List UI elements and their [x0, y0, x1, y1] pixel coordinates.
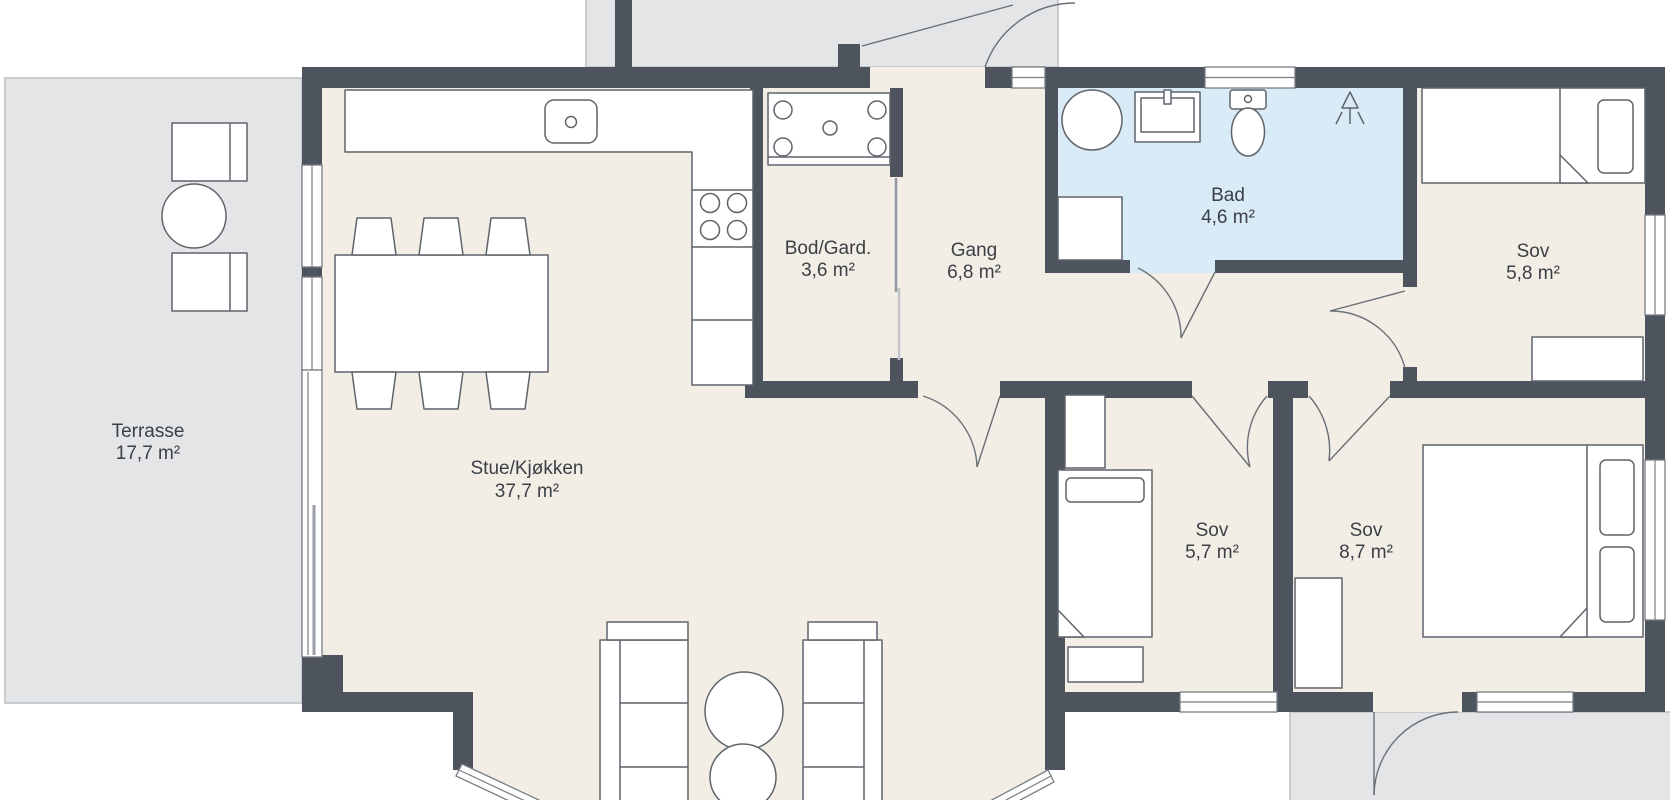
appliance-knob-icon [823, 121, 837, 135]
dining-chair [486, 372, 530, 409]
room-name-bod: Bod/Gard. [785, 238, 872, 259]
toilet-flush-icon [1245, 96, 1252, 103]
sofa-right [803, 640, 882, 800]
room-area-gang: 6,8 m² [947, 262, 1001, 283]
bedroom2-nightstand [1068, 647, 1143, 682]
floor-plan: Terrasse 17,7 m² Stue/Kjøkken 37,7 m² Bo… [0, 0, 1670, 800]
room-area-terrasse: 17,7 m² [116, 443, 180, 464]
dining-chair [352, 218, 396, 255]
room-area-sov2: 5,7 m² [1185, 542, 1239, 563]
dining-chair [419, 218, 463, 255]
cooktop-burner-icon [701, 221, 720, 240]
wall-hall-bath [1045, 88, 1058, 273]
bedroom3-pillow [1600, 547, 1634, 622]
vanity-tap-icon [1164, 90, 1171, 104]
terrace-floor [5, 78, 302, 703]
wall-mid-a [745, 381, 918, 398]
wall-bath-bottom-left [1058, 260, 1130, 273]
floor-plan-canvas: Terrasse 17,7 m² Stue/Kjøkken 37,7 m² Bo… [0, 0, 1670, 800]
southeast-terrace-floor [1290, 712, 1670, 800]
terrace-chair [172, 123, 247, 181]
bedroom3-wardrobe [1295, 578, 1342, 688]
wall-bottom-c [1462, 692, 1477, 712]
sofa-left-armrest [607, 622, 688, 640]
room-area-stue: 37,7 m² [495, 481, 559, 502]
dining-table [335, 255, 548, 372]
terrace-chair [172, 253, 247, 311]
room-area-sov1: 5,8 m² [1506, 263, 1560, 284]
sink-drain-icon [566, 117, 577, 128]
wall-bedroom2-bedroom3 [1273, 381, 1293, 712]
cooktop-burner-icon [728, 221, 747, 240]
toilet-bowl [1232, 108, 1265, 156]
wall-bottom-d [1573, 692, 1665, 712]
room-area-bod: 3,6 m² [801, 260, 855, 281]
dining-chair [486, 218, 530, 255]
dining-chair [419, 372, 463, 409]
appliance-burner-icon [774, 101, 792, 119]
room-name-terrasse: Terrasse [112, 421, 185, 442]
cooktop-burner-icon [701, 194, 720, 213]
wall-storage-hall-top [890, 88, 903, 177]
room-name-sov1: Sov [1517, 241, 1550, 262]
bedroom3-pillow [1600, 460, 1634, 535]
entrance-porch-floor [586, 0, 1058, 67]
room-area-bad: 4,6 m² [1201, 207, 1255, 228]
wall-porch-stub [838, 44, 860, 67]
wall-mid-d [1390, 381, 1665, 398]
wall-bath-bedroom1 [1403, 82, 1417, 287]
bathroom-cabinet [1058, 197, 1122, 260]
bedroom1-dresser [1532, 337, 1643, 381]
sofa-right-armrest [808, 622, 877, 640]
appliance-burner-icon [868, 101, 886, 119]
room-name-bad: Bad [1211, 185, 1245, 206]
washing-machine [1062, 90, 1122, 150]
wall-porch-left [615, 0, 632, 67]
bedroom1-pillow [1598, 100, 1633, 173]
bedroom2-closet [1065, 395, 1105, 468]
wall-bedroom1-stub [1403, 367, 1417, 398]
appliance-burner-icon [868, 138, 886, 156]
room-name-gang: Gang [951, 240, 997, 261]
wall-bottom-a [1045, 692, 1180, 712]
wall-bay-left-horizontal [323, 692, 473, 712]
coffee-table [705, 672, 783, 750]
wall-bay-left-vertical [453, 692, 473, 770]
sofa-left [600, 640, 688, 800]
coffee-table-small [710, 744, 776, 800]
room-name-sov3: Sov [1350, 520, 1383, 541]
room-name-sov2: Sov [1196, 520, 1229, 541]
entrance-door-opening [870, 67, 985, 88]
wall-bath-bottom-right [1215, 260, 1403, 273]
room-area-sov3: 8,7 m² [1339, 542, 1393, 563]
wall-bottom-b [1277, 692, 1373, 712]
terrace-sliding-door [302, 370, 322, 657]
cooktop-burner-icon [728, 194, 747, 213]
bedroom2-pillow [1066, 478, 1144, 502]
dining-chair [352, 372, 396, 409]
room-name-stue: Stue/Kjøkken [471, 458, 584, 479]
appliance-burner-icon [774, 138, 792, 156]
terrace-table [162, 184, 226, 248]
